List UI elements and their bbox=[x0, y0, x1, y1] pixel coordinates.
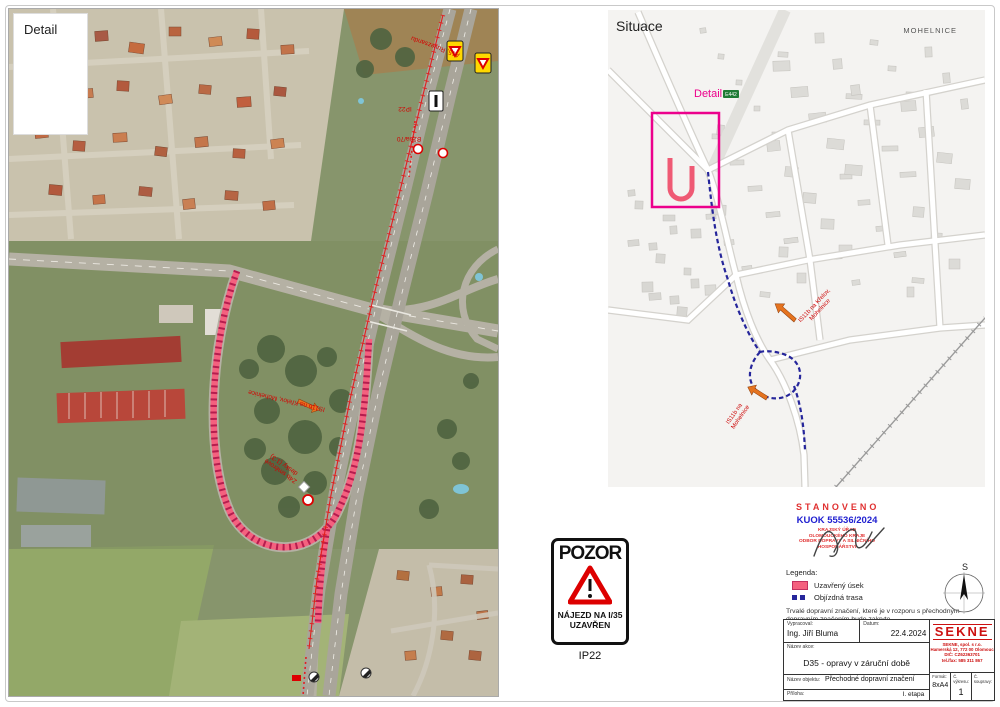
situace-panel: E442 IS11b na Křelov, Mohelnice IS11b na… bbox=[608, 10, 985, 487]
compass-rose: S bbox=[938, 560, 990, 623]
format-cell: Formát: 8xA4 bbox=[930, 673, 951, 700]
stamp-title: STANOVENO bbox=[796, 502, 878, 512]
situace-map-graphic: E442 IS11b na Křelov, Mohelnice IS11b na… bbox=[608, 10, 985, 487]
ip22-sign-icon bbox=[429, 91, 443, 111]
no-entry-sign-icon bbox=[303, 495, 313, 505]
pozor-line1: NÁJEZD NA I/35 bbox=[554, 610, 626, 620]
eroad-badge: E442 bbox=[723, 90, 739, 98]
pozor-sign: POZOR NÁJEZD NA I/35 UZAVŘEN bbox=[551, 538, 629, 645]
title-block: Vypracoval: Ing. Jiří Bluma Datum: 22.4.… bbox=[783, 619, 995, 701]
pozor-sign-code: IP22 bbox=[551, 650, 629, 662]
yellow-giveway-sign-icon bbox=[475, 53, 491, 73]
annotation-ip22: IP22 bbox=[398, 105, 412, 112]
closed-section-swatch bbox=[792, 581, 808, 590]
titleblock-object-cell: Název objektu: Přechodné dopravní značen… bbox=[784, 675, 929, 690]
object-name: Přechodné dopravní značení bbox=[825, 676, 915, 683]
situace-title: Situace bbox=[616, 18, 663, 34]
drawing-number-value: 1 bbox=[953, 687, 969, 697]
detail-label-box: Detail bbox=[13, 13, 88, 135]
speed-sign-icon bbox=[439, 149, 448, 158]
titleblock-date-cell: Datum: 22.4.2024 bbox=[860, 620, 929, 642]
company-block: SEKNE SEKNE, spol. s r.o. Hamerská 12, 7… bbox=[930, 620, 994, 673]
pozor-title: POZOR bbox=[554, 543, 626, 565]
author-name: Ing. Jiří Bluma bbox=[787, 629, 856, 638]
warning-triangle-icon bbox=[568, 565, 612, 605]
format-value: 8xA4 bbox=[932, 682, 948, 689]
compass-north-label: S bbox=[962, 562, 968, 572]
project-name: D35 - opravy v záruční době bbox=[787, 658, 926, 668]
red-sign-marker bbox=[292, 675, 301, 681]
titleblock-author-cell: Vypracoval: Ing. Jiří Bluma bbox=[784, 620, 860, 642]
pozor-line2: UZAVŘEN bbox=[554, 620, 626, 630]
signature-scribble bbox=[806, 518, 896, 563]
detail-callout-label: Detail bbox=[694, 88, 722, 100]
field-strip bbox=[169, 614, 349, 696]
aerial-detail-panel: Detail bbox=[8, 8, 499, 697]
date-value: 22.4.2024 bbox=[863, 629, 926, 638]
drawing-number-cell: Č. výkresu: 1 bbox=[951, 673, 972, 700]
detail-panel-title: Detail bbox=[24, 22, 87, 37]
company-logo: SEKNE bbox=[933, 624, 992, 640]
stage-value: I. etapa bbox=[903, 691, 925, 698]
beacon-icon bbox=[309, 672, 319, 682]
detour-route-swatch bbox=[792, 595, 808, 600]
city-name: MOHELNICE bbox=[903, 26, 957, 35]
speed-sign-icon bbox=[414, 145, 423, 154]
set-number-cell: Č. soupravy: bbox=[972, 673, 994, 700]
titleblock-attachment-cell: Příloha: I. etapa bbox=[784, 690, 929, 700]
eroad-badge-label: E442 bbox=[725, 92, 737, 98]
annotation-b20a: B20a/70 bbox=[397, 135, 422, 142]
beacon-icon bbox=[361, 668, 371, 678]
company-address: SEKNE, spol. s r.o. Hamerská 12, 772 00 … bbox=[930, 642, 994, 663]
titleblock-project-cell: Název akce: D35 - opravy v záruční době bbox=[784, 643, 929, 675]
